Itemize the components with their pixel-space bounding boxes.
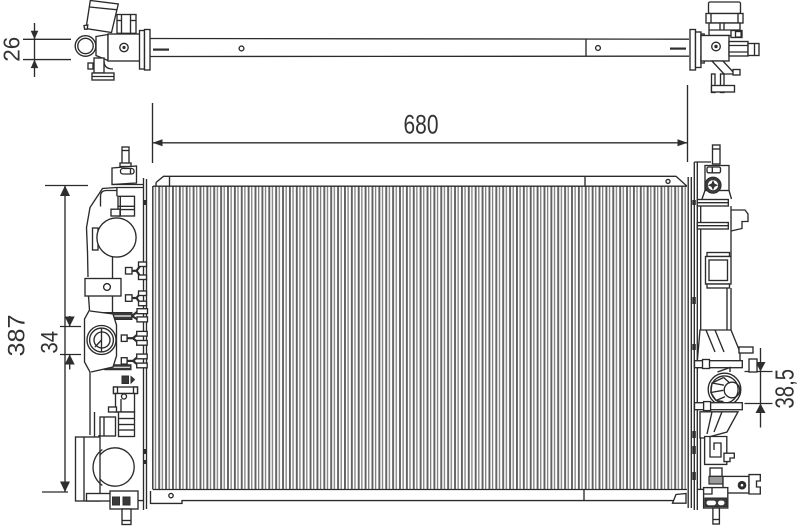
- svg-text:38,5: 38,5: [772, 369, 800, 409]
- svg-text:680: 680: [404, 110, 439, 140]
- svg-text:34: 34: [37, 331, 64, 354]
- svg-text:387: 387: [4, 315, 31, 357]
- svg-text:26: 26: [0, 37, 25, 62]
